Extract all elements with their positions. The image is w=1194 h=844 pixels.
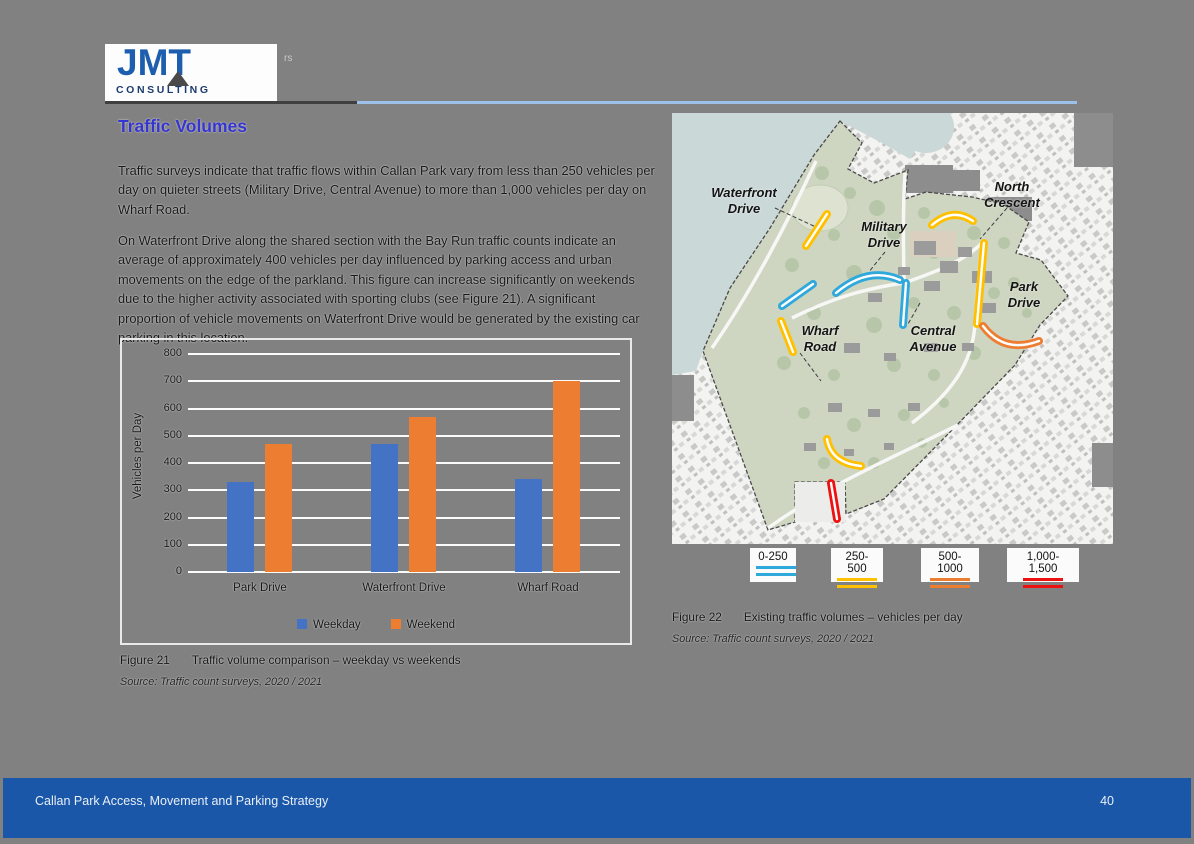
jmt-logo: JMT CONSULTING: [105, 44, 277, 102]
chart-legend-item-weekend: Weekend: [391, 619, 455, 631]
bar-weekend-wharf-road: [553, 381, 580, 572]
volume-line-swatch: [756, 566, 796, 576]
volume-line-swatch: [1023, 578, 1063, 588]
segment-central-avenue-0-250: [903, 283, 906, 325]
callan-park-traffic-map: Waterfront Drive Military Drive North Cr…: [672, 113, 1113, 544]
chart-legend-item-weekday: Weekday: [297, 619, 361, 631]
page-title: Traffic Volumes: [118, 116, 247, 137]
bar-weekday-waterfront-drive: [371, 444, 398, 572]
legend-swatch: [391, 619, 401, 629]
bar-weekday-wharf-road: [515, 479, 542, 572]
map-legend-label: 1,000-1,500: [1027, 551, 1060, 575]
map-legend-item-0-250: 0-250: [750, 548, 796, 582]
volume-line-swatch: [837, 578, 877, 588]
map-label-wharf-road: Wharf Road: [785, 323, 855, 354]
map-legend-item-250-500: 250-500: [831, 548, 883, 582]
chart-y-axis-label: Vehicles per Day: [132, 376, 144, 536]
map-legend-label: 250-500: [845, 551, 868, 575]
map-label-military-drive: Military Drive: [844, 219, 924, 250]
y-tick-label: 800: [146, 347, 182, 359]
logo-artifact-text: rs: [284, 53, 292, 64]
volume-line-swatch: [930, 578, 970, 588]
map-legend-label: 500-1000: [937, 551, 963, 575]
x-category-label: Waterfront Drive: [334, 582, 474, 594]
figure22-label: Figure 22: [672, 610, 722, 624]
figure22-source: Source: Traffic count surveys, 2020 / 20…: [672, 633, 874, 645]
footer-document-title: Callan Park Access, Movement and Parking…: [35, 794, 328, 808]
y-tick-label: 200: [146, 511, 182, 523]
figure22-caption: Figure 22Existing traffic volumes – vehi…: [672, 610, 963, 624]
figure21-source: Source: Traffic count surveys, 2020 / 20…: [120, 676, 322, 688]
header-rule-dark: [105, 101, 357, 104]
paragraph: Traffic surveys indicate that traffic fl…: [118, 161, 655, 220]
y-tick-label: 500: [146, 429, 182, 441]
y-tick-label: 700: [146, 374, 182, 386]
map-legend-item-1000-1500: 1,000-1,500: [1007, 548, 1079, 582]
gridline: [188, 353, 620, 355]
x-category-label: Park Drive: [190, 582, 330, 594]
figure21-caption: Figure 21Traffic volume comparison – wee…: [120, 653, 461, 667]
chart-legend: WeekdayWeekend: [122, 619, 630, 631]
y-tick-label: 400: [146, 456, 182, 468]
footer-bar: Callan Park Access, Movement and Parking…: [3, 778, 1191, 838]
y-tick-label: 300: [146, 483, 182, 495]
figure21-label: Figure 21: [120, 653, 170, 667]
map-legend-label: 0-250: [758, 551, 787, 563]
map-label-park-drive: Park Drive: [989, 279, 1059, 310]
y-tick-label: 0: [146, 565, 182, 577]
traffic-volume-bar-chart: Vehicles per Day 01002003004005006007008…: [120, 338, 632, 645]
bar-weekend-waterfront-drive: [409, 417, 436, 572]
map-label-north-crescent: North Crescent: [966, 179, 1058, 210]
y-tick-label: 600: [146, 402, 182, 414]
bar-weekend-park-drive: [265, 444, 292, 572]
chart-plot-area: 0100200300400500600700800Park DriveWater…: [188, 354, 620, 572]
x-category-label: Wharf Road: [478, 582, 618, 594]
legend-swatch: [297, 619, 307, 629]
y-tick-label: 100: [146, 538, 182, 550]
map-label-waterfront-drive: Waterfront Drive: [699, 185, 789, 216]
bar-weekday-park-drive: [227, 482, 254, 572]
header-rule-blue: [357, 101, 1077, 104]
map-label-central-avenue: Central Avenue: [892, 323, 974, 354]
figure22-caption-text: Existing traffic volumes – vehicles per …: [744, 610, 963, 624]
report-page: JMT CONSULTING rs Traffic Volumes Traffi…: [0, 0, 1194, 844]
footer-page-number: 40: [1100, 794, 1114, 808]
figure21-caption-text: Traffic volume comparison – weekday vs w…: [192, 653, 461, 667]
paragraph: On Waterfront Drive along the shared sec…: [118, 231, 655, 348]
logo-subtitle: CONSULTING: [116, 84, 211, 96]
map-legend-item-500-1000: 500-1000: [921, 548, 979, 582]
